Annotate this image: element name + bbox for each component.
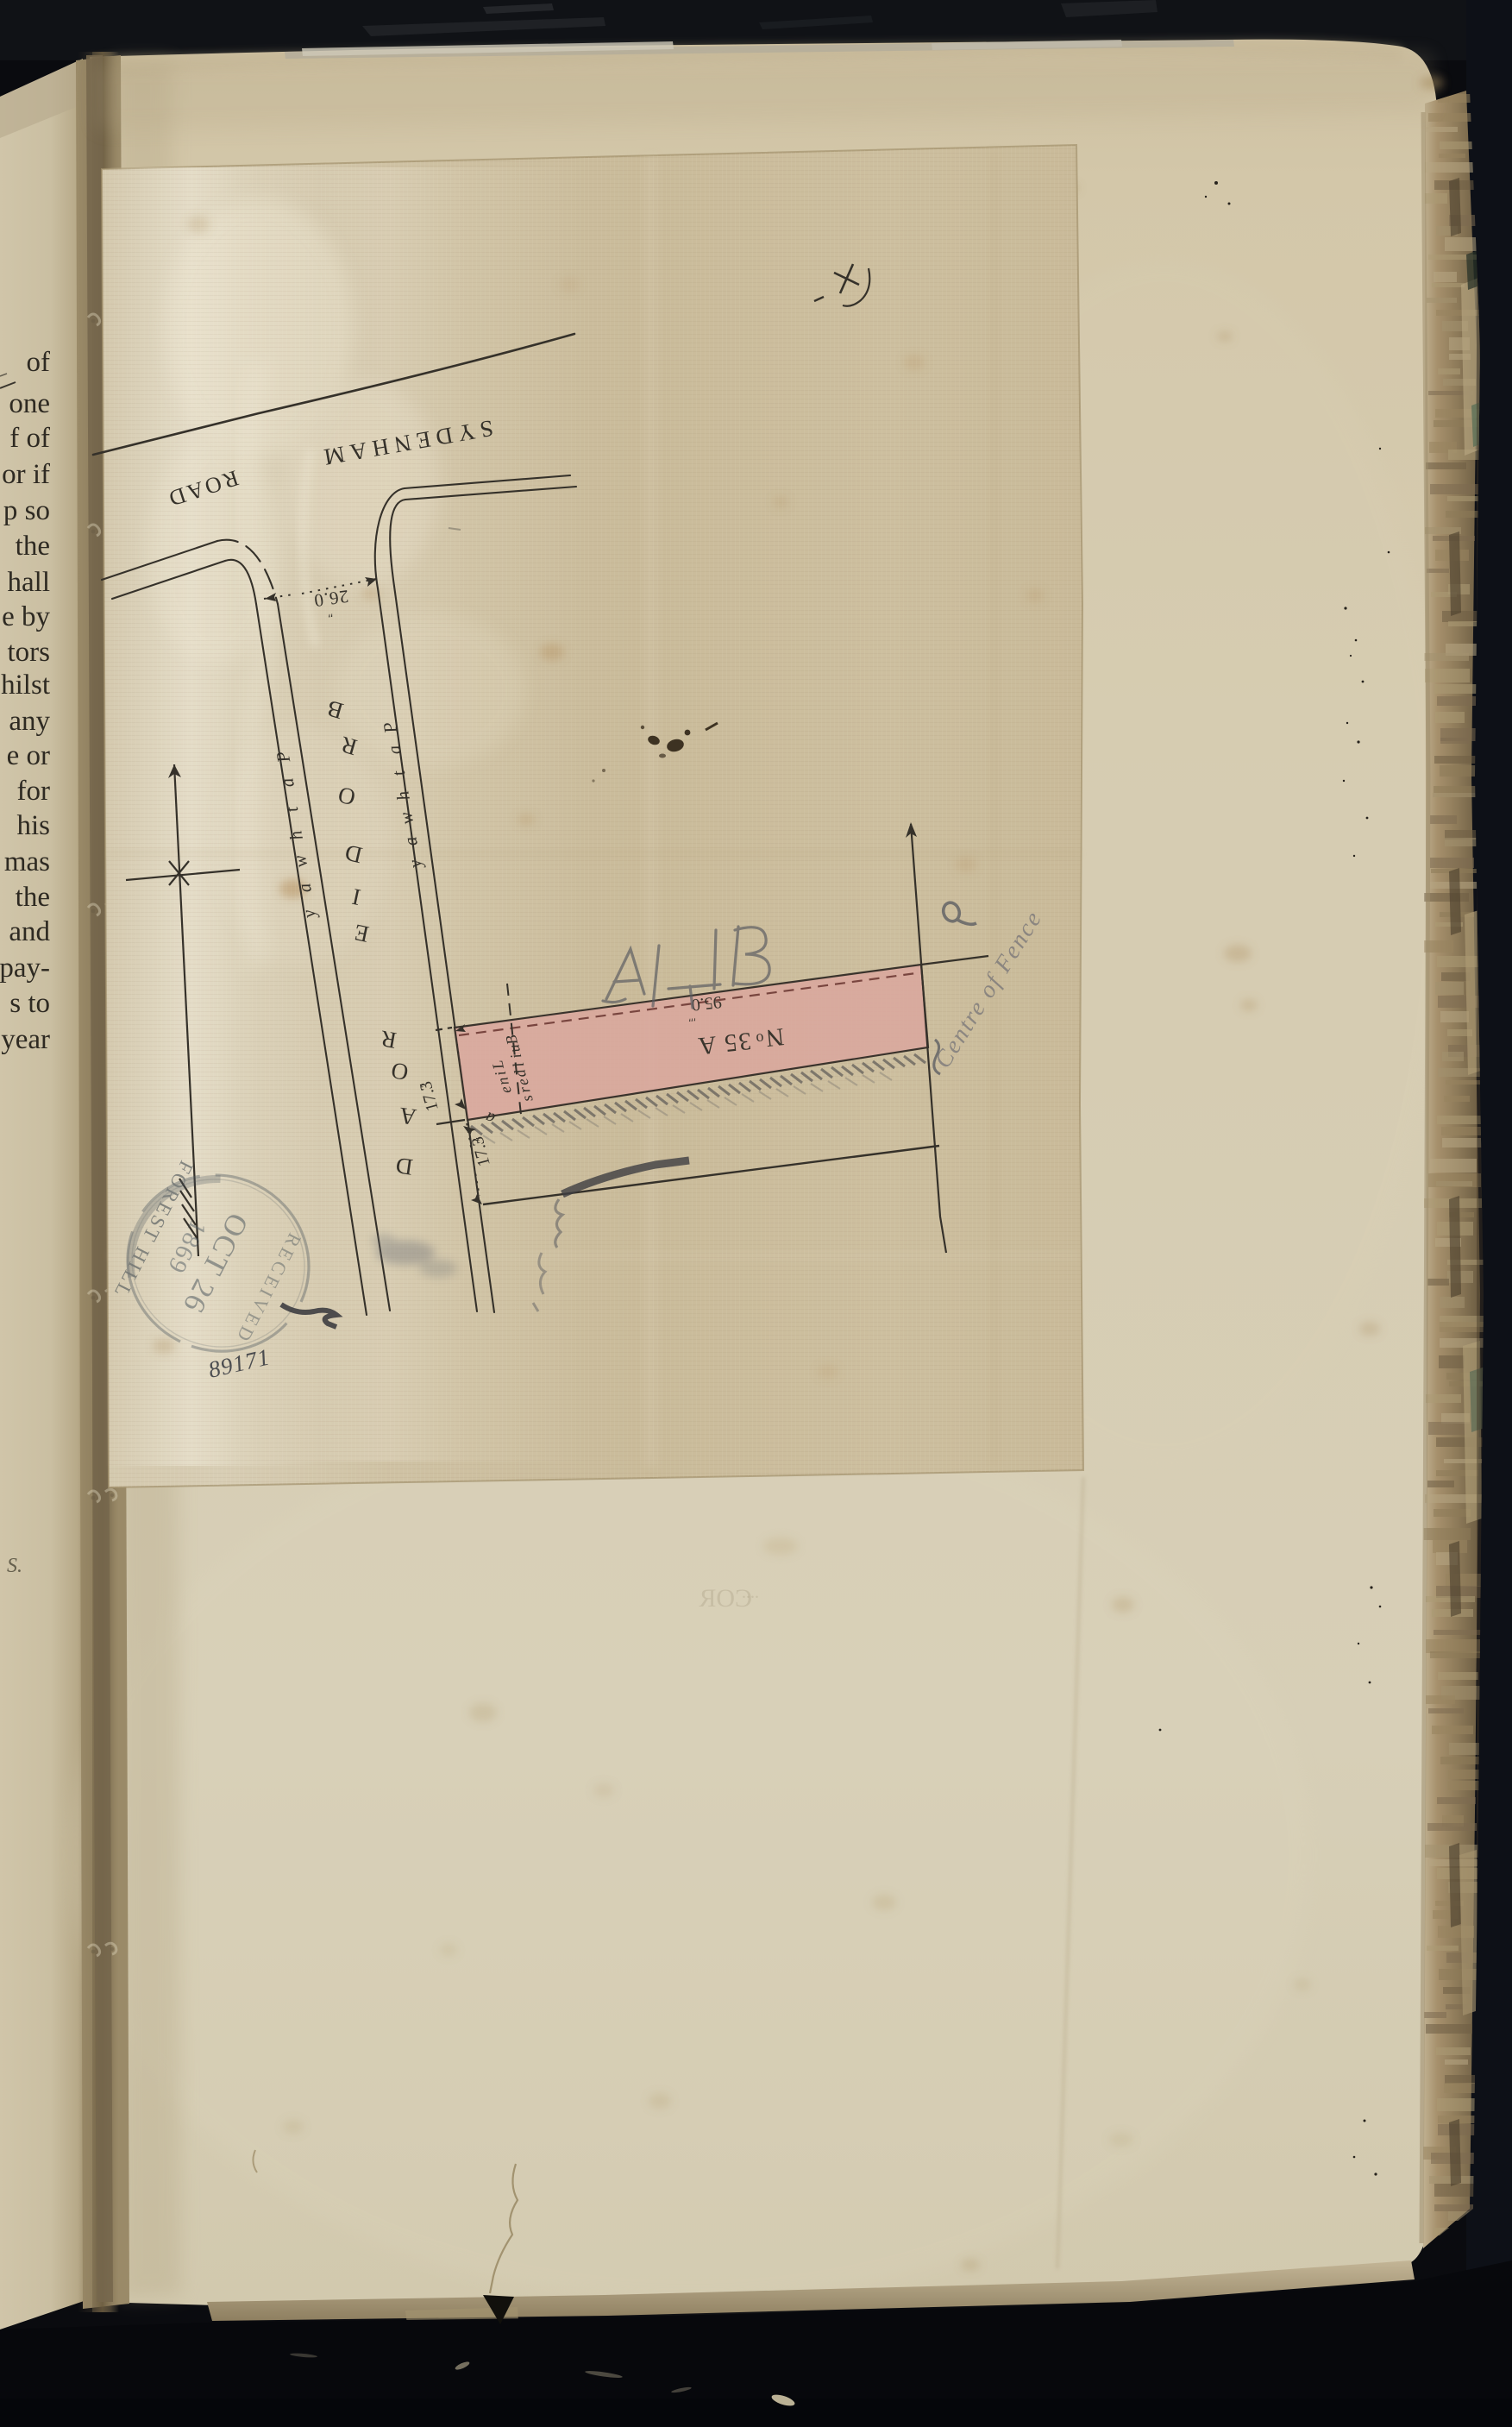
svg-text:any: any	[9, 706, 50, 737]
svg-text:s to: s to	[9, 988, 50, 1019]
svg-text:the: the	[16, 531, 50, 562]
svg-text:N: N	[762, 1022, 785, 1052]
svg-text:e by: e by	[2, 601, 50, 632]
svg-text:or if: or if	[2, 459, 50, 490]
svg-text:the: the	[16, 882, 50, 913]
svg-text:′″: ′″	[687, 1009, 697, 1023]
svg-text:mas: mas	[4, 846, 50, 877]
svg-text:f of: f of	[9, 423, 50, 454]
svg-text:pay-: pay-	[0, 953, 50, 984]
svg-text:and: and	[9, 916, 50, 947]
svg-text:of: of	[27, 347, 51, 378]
svg-text:one: one	[9, 388, 50, 419]
svg-text:35 A: 35 A	[695, 1027, 753, 1059]
svg-text:D: D	[394, 1153, 414, 1180]
svg-text:p so: p so	[3, 495, 50, 526]
svg-text:hall: hall	[8, 567, 50, 598]
svg-text:S.: S.	[7, 1555, 22, 1577]
svg-text:tors: tors	[8, 637, 51, 668]
svg-text:....: ....	[742, 1583, 759, 1602]
svg-text:for: for	[17, 776, 50, 807]
svg-text:his: his	[16, 810, 50, 841]
svg-text:year: year	[1, 1024, 50, 1055]
svg-text:e or: e or	[7, 740, 50, 771]
svg-text:hilst: hilst	[1, 670, 50, 701]
